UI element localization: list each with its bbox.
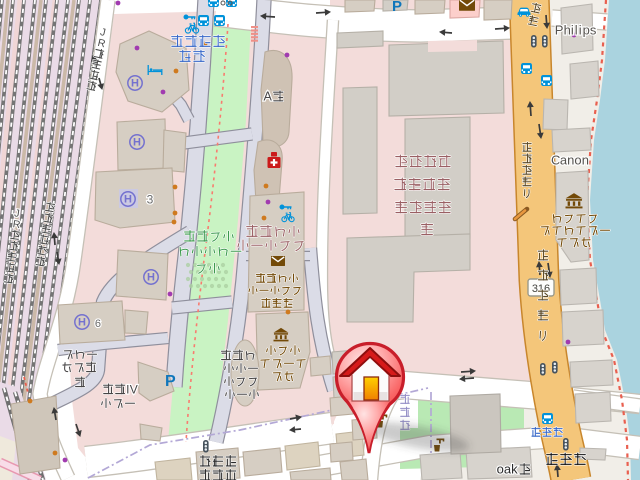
svg-text:p: p [583, 23, 590, 38]
svg-text:6: 6 [95, 318, 101, 330]
svg-text:3: 3 [147, 192, 154, 206]
svg-text:o: o [497, 462, 504, 477]
svg-text:i: i [579, 23, 582, 38]
svg-text:H: H [124, 194, 132, 206]
svg-text:i: i [571, 23, 574, 38]
svg-text:h: h [564, 23, 571, 38]
svg-text:s: s [590, 23, 597, 38]
svg-text:l: l [575, 23, 578, 38]
svg-text:k: k [511, 462, 518, 477]
svg-text:H: H [78, 317, 86, 329]
svg-text:P: P [392, 0, 402, 15]
svg-text:P: P [165, 373, 176, 390]
svg-text:H: H [131, 78, 139, 90]
svg-text:H: H [147, 272, 155, 284]
svg-text:n: n [582, 153, 589, 168]
svg-text:n: n [567, 153, 574, 168]
svg-text:o: o [574, 153, 581, 168]
svg-text:316: 316 [532, 283, 550, 295]
svg-text:V: V [130, 382, 138, 396]
svg-text:H: H [133, 137, 141, 149]
svg-text:A: A [264, 90, 273, 104]
svg-text:P: P [555, 23, 564, 38]
